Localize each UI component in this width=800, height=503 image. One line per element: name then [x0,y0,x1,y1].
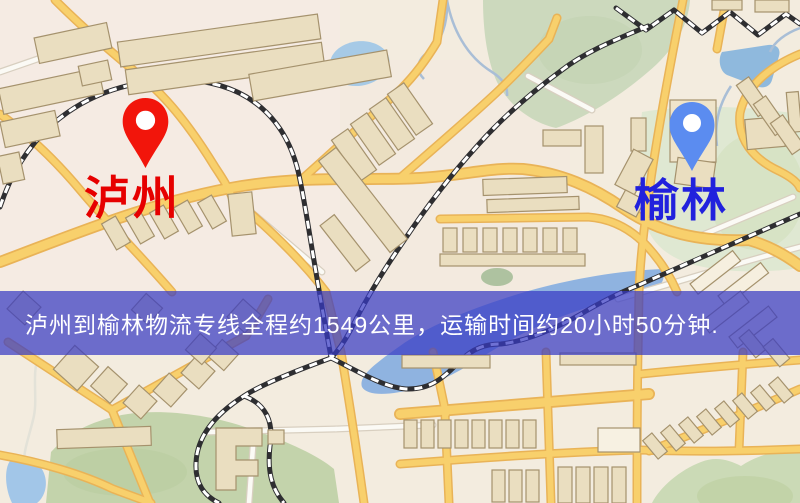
destination-city-label: 榆林 [634,178,728,223]
map-screenshot: 泸州 榆林 泸州到榆林物流专线全程约1549公里，运输时间约20小时50分钟. [0,0,800,503]
origin-city-label: 泸州 [84,176,180,222]
map-canvas [0,0,800,503]
route-info-text: 泸州到榆林物流专线全程约1549公里，运输时间约20小时50分钟. [25,306,719,340]
route-info-banner: 泸州到榆林物流专线全程约1549公里，运输时间约20小时50分钟. [0,291,800,355]
